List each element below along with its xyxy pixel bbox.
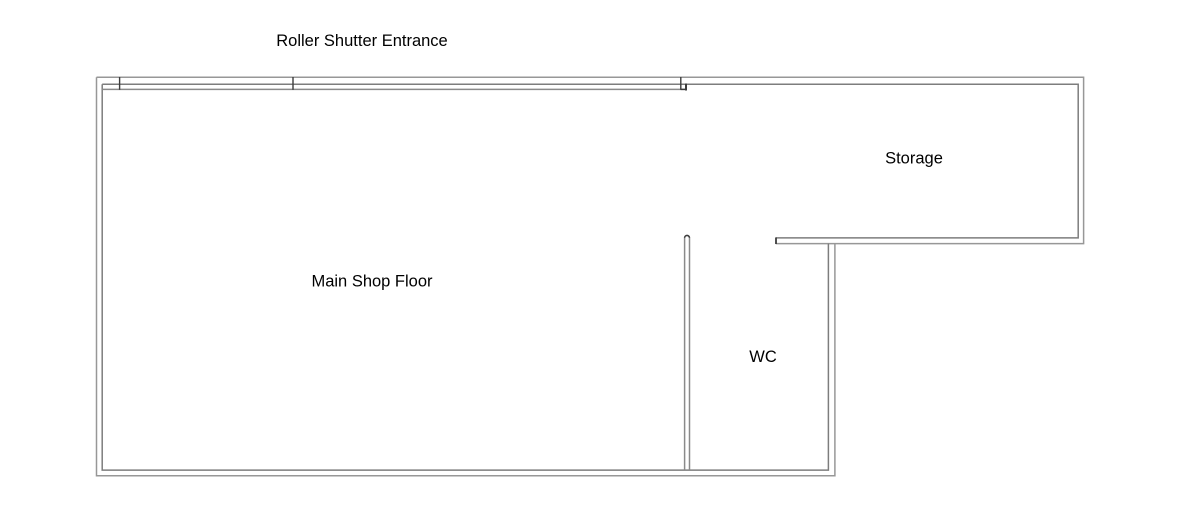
- svg-text:Roller Shutter Entrance: Roller Shutter Entrance: [276, 32, 448, 50]
- svg-text:Main Shop Floor: Main Shop Floor: [311, 273, 433, 291]
- svg-text:Storage: Storage: [885, 150, 943, 168]
- svg-text:WC: WC: [749, 348, 777, 366]
